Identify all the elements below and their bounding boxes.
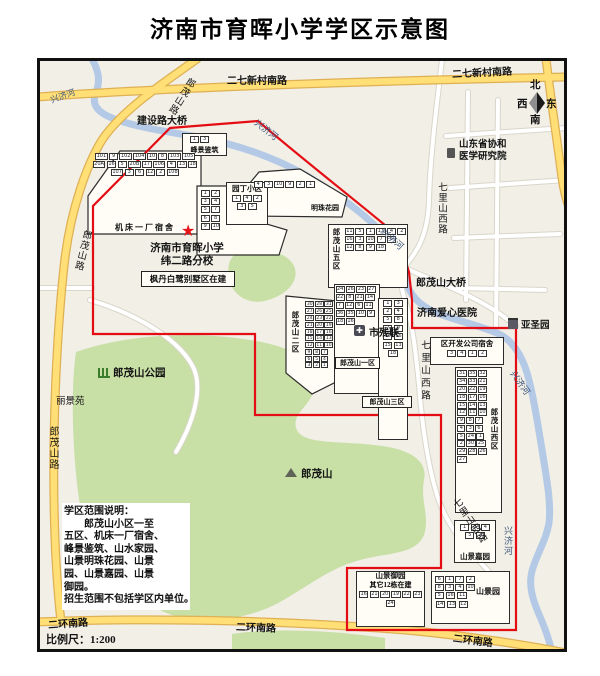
cluster-xiqu: 郎茂山西区 3135323433212022191817161514131211… [455, 367, 502, 513]
building-box: 101 [95, 153, 108, 160]
road-label-langmaoshan-c: 郎茂山路 [45, 426, 60, 470]
building-box: 6 [135, 169, 144, 176]
district-notice: 学区范围说明： 郎茂山小区一至 五区、机床一厂宿舍、 峰景鉴筑、山水家园、 山景… [62, 503, 190, 610]
building-box: 18 [457, 394, 466, 401]
building-box: 14 [315, 335, 324, 341]
place-label-academy: 山东省协和 医学研究院 [459, 140, 507, 163]
building-box: 23 [413, 591, 422, 598]
building-box: 20 [380, 591, 389, 598]
building-box: 9 [367, 310, 375, 317]
building-box: 1 [306, 181, 315, 188]
notice-line: 郎茂山小区一至 [64, 519, 188, 532]
building-box: 16 [345, 236, 354, 243]
building-box: 6 [201, 215, 210, 222]
cluster-label: 郎茂山五区 [331, 228, 342, 271]
building-box: 8 [158, 153, 167, 160]
building-box: 17 [142, 161, 151, 168]
building-box: 16 [324, 329, 333, 335]
building-box: 18 [376, 244, 385, 251]
building-box: 30 [305, 301, 314, 307]
building-box: 16 [359, 591, 368, 598]
building-box: 24 [336, 286, 345, 293]
building-box: 14 [365, 294, 374, 301]
building-box: 23 [356, 286, 365, 293]
building-group: 13 [189, 135, 226, 143]
building-box: 2 [156, 169, 165, 176]
building-box: 22 [324, 315, 333, 321]
building-box: 19 [391, 591, 400, 598]
building-box: 20B [128, 161, 141, 168]
building-box: 28 [468, 448, 477, 455]
place-label-yashengyuan: 亚圣园 [521, 317, 550, 331]
building-box: 6 [305, 356, 312, 362]
building-box: 1 [190, 136, 199, 143]
building-box: 7 [211, 206, 220, 213]
cluster-label: 山景御园 [357, 572, 424, 581]
building-box: 4 [455, 584, 464, 591]
building-box: 10 [366, 236, 375, 243]
park-icon [98, 368, 110, 378]
notice-line: 学区范围说明： [64, 506, 188, 519]
building-box: 107 [111, 169, 124, 176]
building-box: 105 [182, 153, 195, 160]
building-box: 5 [457, 433, 465, 440]
building-group: 16212019222324 [357, 591, 424, 608]
building-box: 24 [305, 315, 314, 321]
building-box: 2 [478, 350, 487, 357]
building-box: 1 [468, 350, 477, 357]
building-box: 1 [232, 195, 241, 202]
building-box: 19 [324, 322, 333, 328]
building-box: 30 [466, 440, 475, 447]
building-group: 4310921 [253, 180, 325, 188]
building-box: 11 [364, 302, 373, 309]
building-box: 5 [435, 592, 444, 599]
building-box: 8 [466, 417, 474, 424]
building-box: 15 [305, 335, 314, 341]
building-box: 13 [394, 342, 403, 349]
building-box: 2 [457, 440, 465, 447]
building-box: 28 [315, 301, 324, 307]
road-label-erhuan-a: 二环南路 [48, 614, 89, 632]
academy-line2: 医学研究院 [459, 152, 507, 164]
building-box: 10 [274, 181, 283, 188]
road-label-erhuan-b: 二环南路 [236, 618, 276, 634]
compass-south: 南 [530, 112, 541, 127]
building-box: 4 [321, 356, 328, 362]
building-box: 12 [345, 244, 354, 251]
building-box: 5 [201, 206, 210, 213]
compass-west: 西 [517, 96, 528, 111]
building-box: 3 [125, 169, 134, 176]
building-box: 8 [211, 215, 220, 222]
scale-label: 比例尺：1:200 [46, 631, 116, 647]
cluster-yuyuan: 山景御园 其它12栋在建 16212019222324 [356, 571, 425, 627]
building-box: 2 [383, 308, 392, 315]
building-box: 12 [459, 601, 468, 608]
building-box: 3 [447, 350, 456, 357]
building-box: 8 [435, 584, 444, 591]
notice-line: 园、山景嘉园、山景 [64, 569, 188, 582]
building-box: 33 [468, 378, 477, 385]
cluster-sublabel: 其它12栋在建 [357, 581, 424, 589]
building-box: 22 [336, 294, 345, 301]
place-label-park: 郎茂山公园 [113, 365, 166, 380]
building-group: 24262327228211471261136351091816 [335, 285, 379, 325]
building-box: 3 [201, 198, 210, 205]
building-box: 17 [468, 394, 477, 401]
building-box: 5 [355, 228, 364, 235]
school-name-label: 济南市育晖小学 纬二路分校 [150, 242, 224, 268]
building-box: 1 [201, 190, 210, 197]
bridge-label-langmaoshan: 郎茂山大桥 [416, 274, 466, 289]
building-box: 8 [346, 294, 354, 301]
building-box: 24 [466, 433, 475, 440]
building-box: 3 [305, 362, 312, 368]
notice-line: 山景明珠花园、山景 [64, 556, 188, 569]
building-box: 12 [457, 409, 466, 416]
road-label-qilishan-b: 七里山西路 [417, 340, 431, 403]
cluster-label: 郎茂山西区 [489, 408, 500, 451]
building-box: 106 [153, 161, 166, 168]
building-group: 61728341051611141312 [434, 575, 476, 609]
building-box: 10 [478, 409, 487, 416]
notice-line: 五区、机床一厂宿舍、 [64, 531, 188, 544]
building-box: 20 [315, 322, 324, 328]
place-label-fengdan: 枫丹白鹭别墅区在建 [141, 271, 235, 287]
building-group: 3028312726252423222120191817161514131211… [305, 301, 335, 369]
building-box: 1 [321, 362, 328, 368]
building-box: 16 [107, 161, 116, 168]
building-box: 21 [305, 322, 314, 328]
building-box: 9 [201, 223, 210, 230]
building-box: 3 [394, 300, 403, 307]
building-box: 3 [264, 181, 273, 188]
building-box: 103 [168, 153, 181, 160]
building-box: 2 [211, 190, 220, 197]
building-box: 18 [188, 161, 197, 168]
building-box: 3 [445, 584, 454, 591]
building-box: 5 [313, 356, 320, 362]
building-box: 31 [457, 370, 466, 377]
building-box: 13 [324, 335, 333, 341]
building-box: 3 [466, 425, 474, 432]
building-box: 13 [447, 601, 456, 608]
place-label-mountain: 郎茂山 [301, 466, 333, 481]
building-box: 8 [394, 316, 403, 323]
building-box: 4 [254, 181, 263, 188]
cluster-label: 区开发公司宿舍 [431, 338, 503, 349]
cluster-label: 郎茂山二区 [290, 311, 301, 354]
building-box: 12 [146, 169, 155, 176]
building-box: 1 [366, 228, 375, 235]
building-box: 4 [457, 425, 465, 432]
cluster-label: 明珠花园 [311, 203, 339, 213]
cluster-label-sanqu: 郎茂山三区 [362, 396, 412, 408]
yashengyuan-icon [508, 318, 518, 329]
building-box: 10 [211, 223, 220, 230]
place-label-aixin-hospital: 济南爱心医院 [417, 304, 477, 319]
building-box: 18 [336, 318, 345, 325]
river-label-e: 兴济河 [502, 526, 515, 556]
compass-east: 东 [546, 96, 557, 111]
building-box: 3 [355, 236, 364, 243]
building-box: 11 [468, 409, 477, 416]
building-box: 9 [285, 181, 294, 188]
building-box: 23 [315, 315, 324, 321]
building-box: 22 [468, 386, 477, 393]
building-group: 3412 [431, 349, 503, 357]
building-box: 27 [457, 456, 466, 463]
cluster-mingzhu: 4310921 明珠花园 [245, 174, 343, 216]
notice-line: 招生范围不包括学区内单位。 [64, 594, 188, 607]
building-box: 1 [445, 576, 454, 583]
building-box: 1 [476, 433, 484, 440]
building-box: 9 [305, 349, 312, 355]
building-box: 10 [324, 342, 333, 348]
building-box: 16 [478, 394, 487, 401]
building-box: 15 [383, 342, 392, 349]
cluster-erqu: 郎茂山二区 3028312726252423222120191817161514… [288, 299, 336, 391]
building-box: 16 [446, 592, 455, 599]
building-box: 18 [305, 329, 314, 335]
mountain-icon [285, 468, 297, 477]
building-box: 2 [313, 362, 320, 368]
school-name-line2: 纬二路分校 [150, 255, 224, 268]
building-box: 32 [478, 370, 487, 377]
academy-icon [447, 148, 455, 158]
building-box: 25 [324, 308, 333, 314]
building-box: 9 [366, 244, 375, 251]
building-box: 18 [388, 350, 397, 357]
building-box: 3 [200, 136, 209, 143]
academy-line1: 山东省协和 [459, 140, 507, 152]
building-box: 9 [109, 153, 118, 160]
building-box: 108 [167, 169, 180, 176]
building-box: 4 [211, 198, 220, 205]
building-box: 5 [118, 161, 127, 168]
building-box: 12 [305, 342, 314, 348]
building-box: 7 [336, 302, 344, 309]
cluster-jingyuan: 山景园 61728341051611141312 [431, 571, 510, 624]
building-box: 2 [466, 576, 475, 583]
building-box: 14 [468, 402, 477, 409]
building-box: 35 [346, 310, 355, 317]
cluster-label-yiqu: 郎茂山一区 [335, 357, 380, 369]
building-box: 24 [386, 600, 395, 607]
building-box: 104 [133, 153, 146, 160]
notice-line: 峰景鉴筑、山水家园、 [64, 544, 188, 557]
compass-north: 北 [530, 77, 541, 92]
bridge-label-jianshe: 建设路大桥 [137, 112, 187, 127]
building-box: 7 [455, 576, 464, 583]
building-box: 19 [478, 386, 487, 393]
building-box: 14 [436, 601, 445, 608]
school-name-line1: 济南市育晖小学 [150, 242, 224, 255]
building-box: 7 [321, 349, 328, 355]
building-box: 26 [478, 448, 487, 455]
building-box: 13 [177, 161, 186, 168]
road-label-erqi-south-b: 二七新村南路 [452, 62, 513, 80]
building-box: 7 [475, 417, 483, 424]
building-box: 2 [397, 228, 406, 235]
cluster-label: 山景嘉园 [455, 551, 495, 562]
building-box: 13 [478, 402, 487, 409]
building-box: 2 [296, 181, 305, 188]
building-box: 4 [394, 308, 403, 315]
place-label-canlian: 市残联 [369, 324, 399, 339]
building-box: 11 [315, 342, 324, 348]
building-box: 6 [435, 576, 444, 583]
building-box: 10 [356, 310, 365, 317]
building-box: 6 [475, 425, 483, 432]
building-box: 21 [355, 294, 364, 301]
canlian-icon: ✚ [354, 325, 365, 336]
building-box: 17 [315, 329, 324, 335]
building-box: 16 [346, 318, 355, 325]
district-map-page: 济南市育晖小学学区示意图 [0, 0, 600, 676]
building-box: 35 [468, 370, 477, 377]
building-box: 21 [478, 378, 487, 385]
building-box: 26 [346, 286, 355, 293]
building-box: 22 [402, 591, 411, 598]
building-box: 1 [383, 300, 392, 307]
building-group: 101910210410810310520A16520B171064131810… [91, 152, 199, 177]
building-box: 4 [167, 161, 176, 168]
building-group: 3135323433212022191817161514131211109874… [457, 370, 490, 463]
notice-line: 御园。 [64, 582, 188, 595]
building-box: 27 [305, 308, 314, 314]
cluster-kaifa: 区开发公司宿舍 3412 [430, 337, 504, 365]
building-box: 4 [457, 350, 466, 357]
building-box: 36 [336, 310, 345, 317]
building-box: 9 [457, 417, 465, 424]
road-label-erqi-south-a: 二七新村南路 [227, 72, 287, 87]
building-box: 29 [457, 448, 466, 455]
school-star-icon: ★ [181, 221, 195, 241]
building-box: 34 [457, 378, 466, 385]
building-box: 27 [367, 286, 376, 293]
building-box: 25 [476, 440, 485, 447]
building-box: 10 [147, 153, 156, 160]
building-box: 10 [466, 584, 475, 591]
building-box: 5 [383, 316, 392, 323]
building-box: 6 [355, 302, 363, 309]
cluster-label: 山景园 [476, 586, 500, 597]
cluster-yiqu: 24262327228211471261136351091816 [334, 284, 380, 394]
building-box: 31 [324, 301, 333, 307]
building-box: 21 [370, 591, 379, 598]
building-box: 20 [457, 386, 466, 393]
cluster-sanqu: 132458791016151318 [378, 298, 408, 440]
building-box: 8 [355, 244, 364, 251]
building-box: 20A [93, 161, 106, 168]
building-box: 15 [457, 402, 466, 409]
building-box: 8 [313, 349, 320, 355]
road-label-qilishan-a: 七里山西路 [434, 182, 448, 235]
building-box: 11 [457, 592, 466, 599]
place-label-lijingyuan: 丽景苑 [56, 393, 85, 407]
building-box: 102 [119, 153, 132, 160]
building-box: 11 [345, 228, 354, 235]
building-box: 12 [345, 302, 354, 309]
building-box: 26 [315, 308, 324, 314]
